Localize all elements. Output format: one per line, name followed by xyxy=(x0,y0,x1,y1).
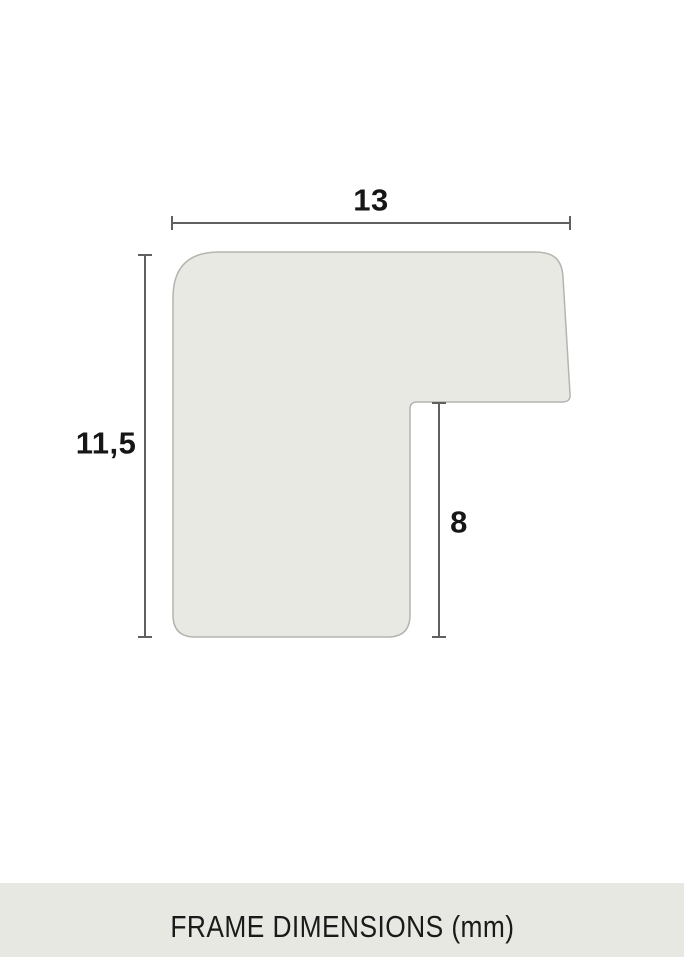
caption-text: FRAME DIMENSIONS (mm) xyxy=(170,911,514,942)
height-dimension-line xyxy=(138,255,152,637)
depth-dimension-line xyxy=(432,403,446,637)
depth-dimension-value: 8 xyxy=(450,507,468,538)
frame-dimension-diagram-page: 13 11,5 8 FRAME DIMENSIONS (mm) xyxy=(0,0,684,957)
caption-bar: FRAME DIMENSIONS (mm) xyxy=(0,883,684,957)
width-dimension-line xyxy=(172,216,570,230)
frame-profile-shape xyxy=(173,252,570,637)
width-dimension-value: 13 xyxy=(353,185,388,216)
height-dimension-value: 11,5 xyxy=(76,428,137,459)
diagram-stage: 13 11,5 8 xyxy=(0,0,684,883)
